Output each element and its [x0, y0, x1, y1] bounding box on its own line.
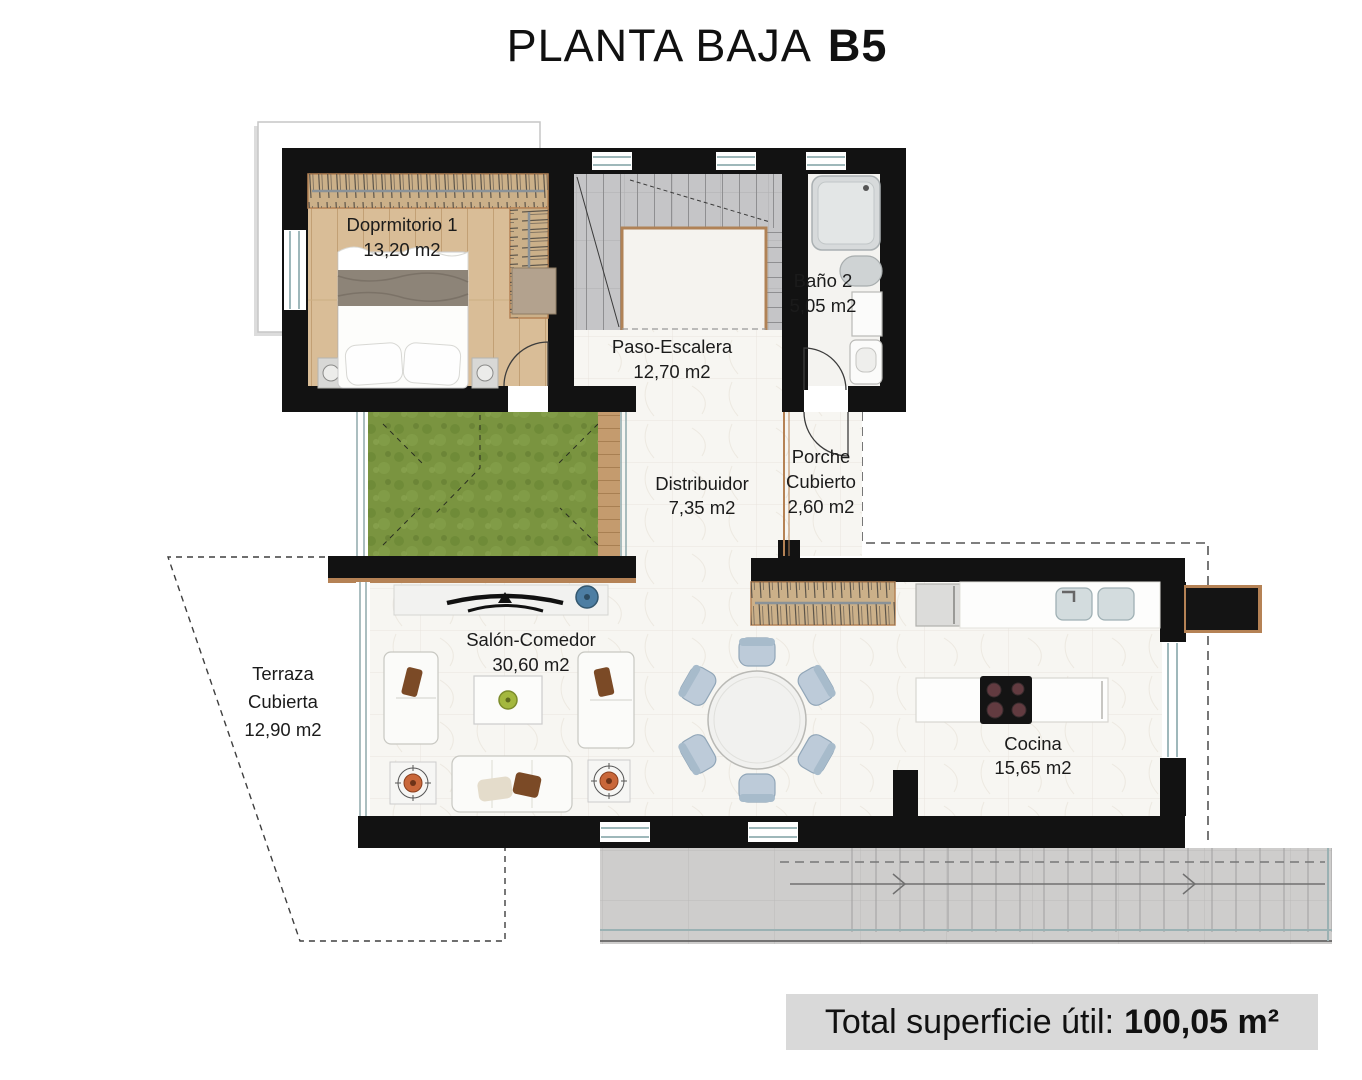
dining-chair	[739, 638, 775, 666]
room-porche: Porche Cubierto 2,60 m2	[786, 446, 856, 517]
terraza-label-line2: Cubierta	[248, 691, 319, 712]
distribuidor-label-name: Distribuidor	[655, 473, 749, 494]
terraza-label-line1: Terraza	[252, 663, 314, 684]
salon-label-area: 30,60 m2	[492, 654, 569, 675]
fridge	[916, 584, 960, 626]
window-top-1	[592, 152, 632, 170]
grass-area	[368, 412, 598, 556]
wall-niche	[512, 268, 556, 314]
salon-label-name: Salón-Comedor	[466, 629, 596, 650]
coffee-table	[474, 676, 542, 724]
patio-wood-trim	[328, 578, 636, 583]
paso-label-area: 12,70 m2	[633, 361, 710, 382]
window-top-2	[716, 152, 756, 170]
window-kitchen-right	[1162, 642, 1184, 758]
bench-sofa	[452, 756, 572, 812]
deck-strip	[598, 412, 620, 556]
window-bedroom-left	[284, 230, 306, 310]
floor-plan-drawing: Terraza Cubierta 12,90 m2	[0, 0, 1362, 1080]
cocina-label-area: 15,65 m2	[994, 757, 1071, 778]
glass-wall-patio-left	[352, 412, 368, 556]
bano-label-area: 5,05 m2	[790, 295, 857, 316]
total-area-bar: Total superficie útil:100,05 m²	[786, 994, 1318, 1050]
porche-label-area: 2,60 m2	[788, 496, 855, 517]
floor-plan-page: PLANTA BAJAB5	[0, 0, 1362, 1080]
porche-label-line2: Cubierto	[786, 471, 856, 492]
exterior-steps-terrace	[600, 848, 1332, 944]
glass-wall-living-left	[356, 582, 370, 816]
coat-closet	[751, 582, 895, 625]
sofa-right	[578, 652, 634, 748]
dining-table	[708, 671, 806, 769]
side-table-right	[588, 760, 630, 802]
kitchen-island	[916, 676, 1108, 724]
sofa-left	[384, 652, 438, 744]
porche-label-line1: Porche	[792, 446, 851, 467]
exterior-beam	[1184, 585, 1262, 633]
cooktop	[980, 676, 1032, 724]
side-table-left	[390, 762, 436, 804]
patio-garden	[368, 412, 620, 556]
stair-landing	[622, 228, 766, 330]
wardrobe-top	[308, 174, 548, 208]
window-bottom-1	[600, 822, 650, 842]
staircase	[572, 174, 782, 330]
cocina-label-name: Cocina	[1004, 733, 1062, 754]
dining-chair	[739, 774, 775, 802]
dormitorio-label-name: Doprmitorio 1	[346, 214, 457, 235]
total-area-label: Total superficie útil:	[825, 1003, 1114, 1042]
toilet	[850, 340, 882, 384]
bath-cabinet	[852, 292, 882, 336]
window-bottom-2	[748, 822, 798, 842]
paso-label-name: Paso-Escalera	[612, 336, 733, 357]
bano-label-name: Baño 2	[794, 270, 853, 291]
dormitorio-label-area: 13,20 m2	[363, 239, 440, 260]
distribuidor-label-area: 7,35 m2	[669, 497, 736, 518]
shower-tray	[812, 176, 880, 250]
total-area-value: 100,05 m²	[1124, 1003, 1279, 1042]
terraza-label-area: 12,90 m2	[244, 719, 321, 740]
window-top-3	[806, 152, 846, 170]
tv-console	[394, 585, 608, 615]
